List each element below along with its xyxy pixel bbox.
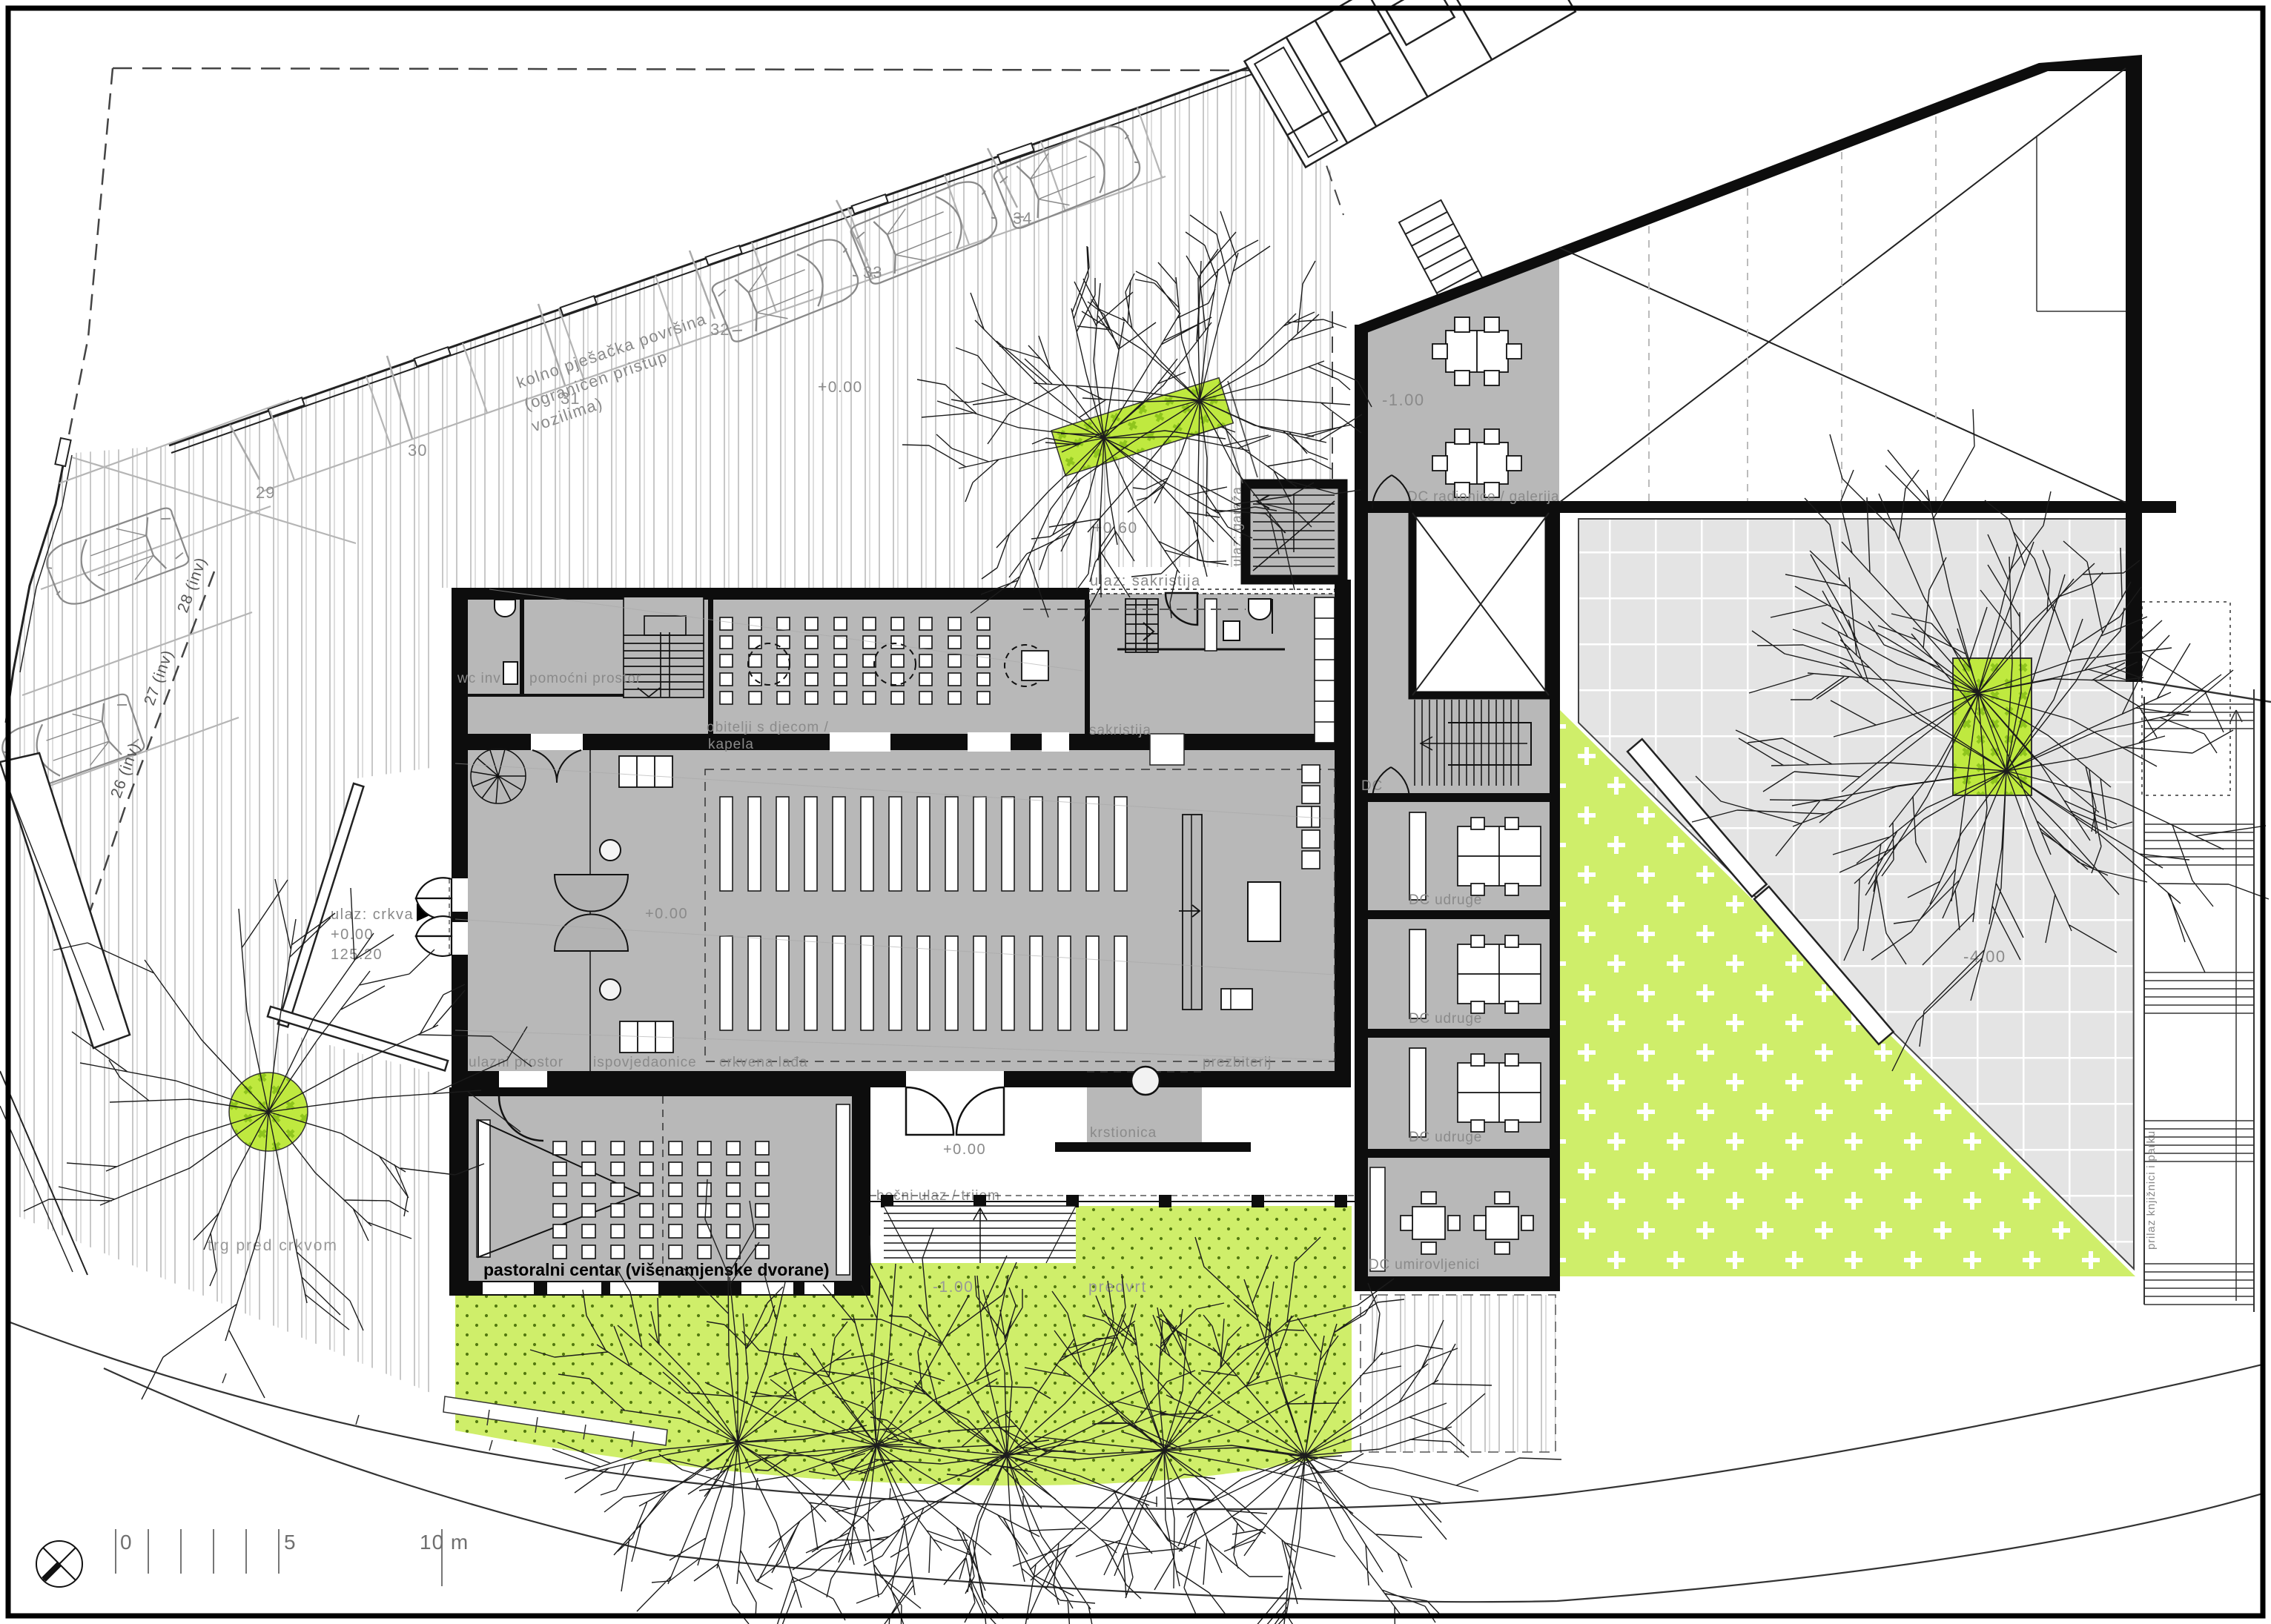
svg-text:ulaz: garaža: ulaz: garaža	[1229, 486, 1244, 566]
svg-text:+0.00: +0.00	[943, 1141, 986, 1158]
svg-text:krstionica: krstionica	[1090, 1125, 1157, 1141]
svg-text:125.20: 125.20	[331, 947, 383, 963]
svg-text:DC udruge: DC udruge	[1409, 1011, 1482, 1027]
svg-text:pomoćni prostor: pomoćni prostor	[529, 671, 641, 686]
svg-text:-1.00: -1.00	[933, 1279, 973, 1296]
svg-text:32: 32	[710, 320, 730, 339]
svg-text:trg pred crkvom: trg pred crkvom	[208, 1237, 338, 1254]
svg-text:DC radionice / galerija: DC radionice / galerija	[1407, 489, 1559, 505]
svg-text:0: 0	[120, 1531, 133, 1554]
svg-text:+0.00: +0.00	[331, 927, 374, 943]
svg-text:prilaz knjižnici i parku: prilaz knjižnici i parku	[2145, 1130, 2158, 1250]
svg-text:5: 5	[284, 1531, 297, 1554]
svg-text:10 m: 10 m	[420, 1531, 469, 1554]
svg-text:ulazni prostor: ulazni prostor	[469, 1055, 563, 1070]
svg-text:sakristija: sakristija	[1089, 723, 1151, 738]
svg-text:ispovjedaonice: ispovjedaonice	[593, 1055, 697, 1070]
svg-text:+0.00: +0.00	[645, 906, 688, 922]
svg-text:DC umirovljenici: DC umirovljenici	[1369, 1257, 1480, 1273]
svg-text:predvrt: predvrt	[1088, 1279, 1147, 1296]
svg-text:ulaz: crkva: ulaz: crkva	[331, 907, 414, 923]
svg-text:pastoralni centar (višenamjens: pastoralni centar (višenamjenske dvorane…	[483, 1260, 830, 1279]
svg-text:prezbiterij: prezbiterij	[1203, 1055, 1272, 1070]
svg-text:wc inv: wc inv	[457, 671, 501, 686]
svg-text:obitelji s djecom /: obitelji s djecom /	[707, 720, 829, 735]
svg-text:-1.00: -1.00	[1382, 391, 1425, 409]
svg-text:DC udruge: DC udruge	[1409, 892, 1482, 908]
svg-text:+0.00: +0.00	[818, 379, 863, 396]
svg-text:DC: DC	[1361, 778, 1383, 794]
svg-text:DC udruge: DC udruge	[1409, 1130, 1482, 1145]
svg-text:30: 30	[408, 441, 427, 460]
svg-text:kapela: kapela	[708, 737, 754, 752]
svg-text:crkvena lađa: crkvena lađa	[719, 1055, 808, 1070]
svg-text:29: 29	[256, 483, 275, 502]
